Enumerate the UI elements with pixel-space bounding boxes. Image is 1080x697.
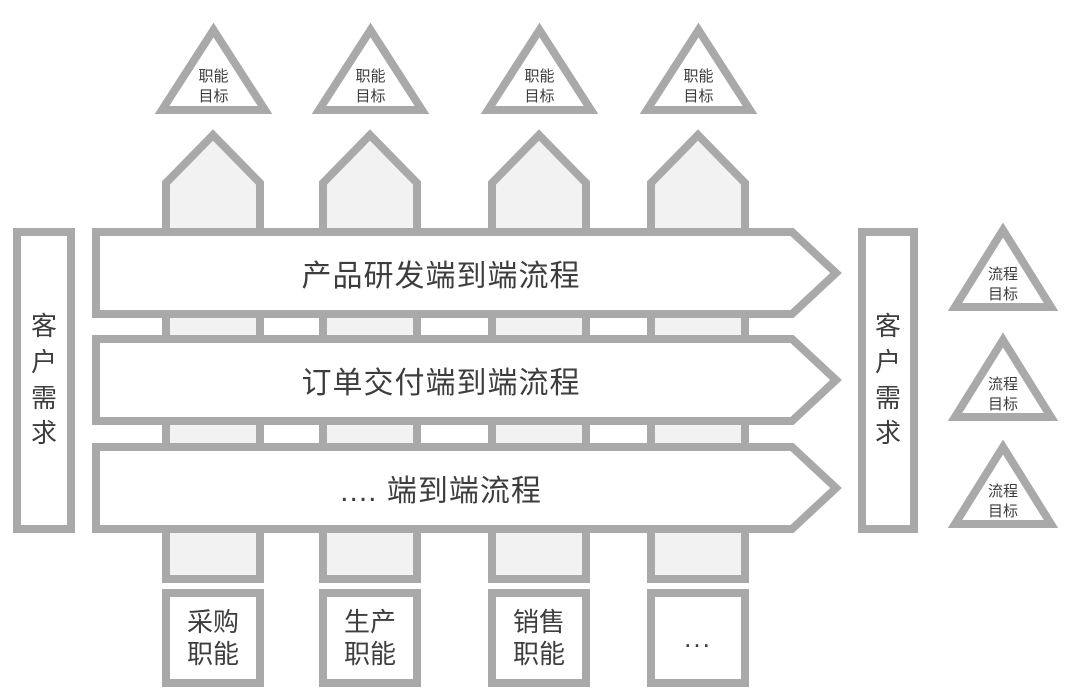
function-box-production: 生产职能: [319, 589, 421, 687]
functional-goal-label: 职能目标: [354, 67, 388, 108]
function-box-label: 销售职能: [511, 606, 567, 671]
functional-goal-triangle-2: 职能目标: [312, 23, 429, 116]
function-box-label: 生产职能: [342, 606, 398, 671]
functional-goal-triangle-4: 职能目标: [640, 23, 757, 116]
process-row-label: .... 端到端流程: [92, 443, 790, 533]
process-function-matrix-diagram: 职能目标 职能目标 职能目标 职能目标 产品研发端到端流程 订单交付端到端流程: [0, 0, 1080, 697]
functional-goal-label: 职能目标: [682, 67, 716, 108]
process-row-label: 订单交付端到端流程: [92, 335, 790, 425]
function-box-procurement: 采购职能: [162, 589, 264, 687]
function-box-ellipsis: ...: [647, 589, 749, 687]
process-goal-triangle-3: 流程目标: [948, 440, 1058, 530]
functional-goal-label: 职能目标: [197, 67, 231, 108]
process-goal-label: 流程目标: [986, 265, 1020, 306]
process-row-1: 产品研发端到端流程: [92, 228, 840, 318]
customer-needs-bar-left: 客户需求: [13, 228, 75, 533]
functional-goal-triangle-3: 职能目标: [481, 23, 598, 116]
process-row-3: .... 端到端流程: [92, 443, 840, 533]
functional-goal-triangle-1: 职能目标: [155, 23, 272, 116]
function-box-sales: 销售职能: [488, 589, 590, 687]
customer-needs-label: 客户需求: [30, 309, 58, 453]
process-goal-label: 流程目标: [986, 482, 1020, 523]
process-goal-triangle-2: 流程目标: [948, 333, 1058, 423]
process-goal-triangle-1: 流程目标: [948, 223, 1058, 313]
process-row-2: 订单交付端到端流程: [92, 335, 840, 425]
function-box-label: 采购职能: [185, 606, 241, 671]
function-box-label: ...: [684, 622, 712, 655]
functional-goal-label: 职能目标: [523, 67, 557, 108]
process-goal-label: 流程目标: [986, 375, 1020, 416]
customer-needs-bar-right: 客户需求: [858, 228, 918, 533]
process-row-label: 产品研发端到端流程: [92, 228, 790, 318]
customer-needs-label: 客户需求: [874, 309, 902, 453]
